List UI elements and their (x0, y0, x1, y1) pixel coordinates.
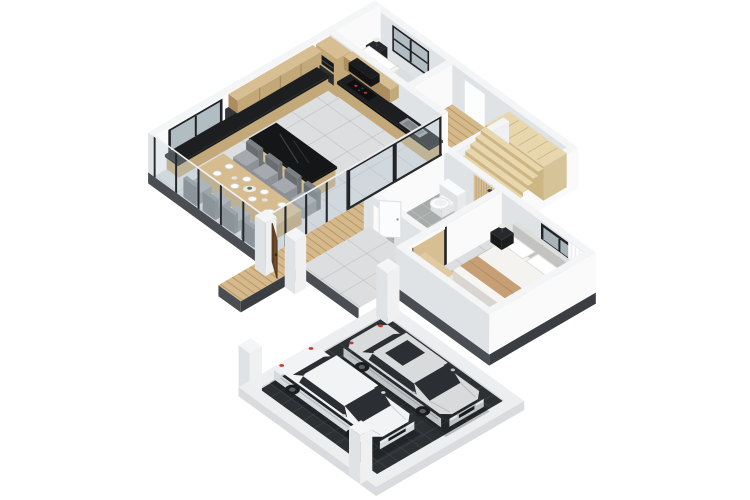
floor-plan-stage: 3D isometric floor plan render of a sing… (0, 0, 750, 500)
floor-plan-3d-render: 3D isometric floor plan render of a sing… (0, 0, 750, 500)
